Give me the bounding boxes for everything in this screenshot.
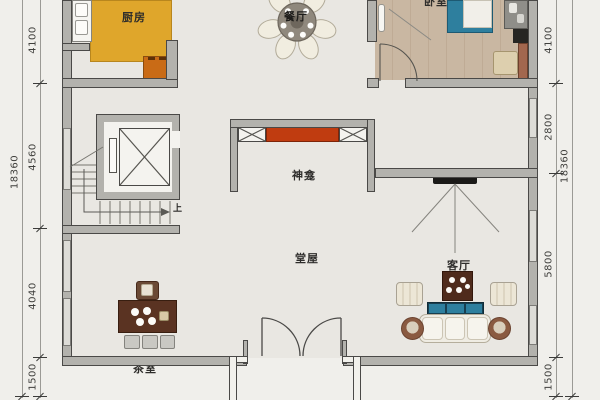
dim-left-seg-4100: 4100 — [28, 26, 39, 53]
dim-line-left-segments — [40, 0, 41, 398]
dining-room-label: 餐厅 — [284, 8, 308, 24]
bedroom-left-wall — [367, 0, 377, 42]
dim-right-overall-18360: 18360 — [560, 149, 571, 183]
tea-stool-2 — [142, 335, 158, 349]
kitchen-sink-basin-1 — [75, 3, 88, 17]
stove-knob-2 — [159, 57, 166, 60]
tea-stool-1 — [124, 335, 140, 349]
dim-right-seg-5800: 5800 — [544, 250, 555, 277]
dim-right-seg-1500: 1500 — [544, 363, 555, 390]
tea-cup-4 — [148, 317, 156, 325]
dim-tick — [565, 389, 579, 400]
armchair-right — [490, 282, 517, 306]
coffee-table-flower-4 — [456, 287, 462, 293]
shrine-wall-right — [367, 119, 375, 192]
elevator-door-gap — [171, 131, 180, 148]
porch-wall-right-side — [353, 356, 361, 400]
coffee-table-flower-3 — [446, 287, 452, 293]
bedroom-bottom-wall-corner — [367, 78, 379, 88]
tea-tray — [159, 311, 169, 321]
dim-right-seg-4100: 4100 — [544, 26, 555, 53]
stairs-up-label: 上 — [173, 201, 183, 214]
floor-plan: 厨房 神龛 客厅 堂屋 茶室 — [0, 0, 600, 400]
window-right-2 — [529, 210, 537, 262]
tea-cup-3 — [136, 318, 144, 326]
window-left-1 — [63, 128, 71, 190]
window-right-3 — [529, 305, 537, 345]
dim-line-right-segments — [556, 0, 557, 398]
dim-tick — [33, 221, 47, 235]
kitchen-left-wall-stub — [62, 43, 90, 51]
stairhall-bottom-wall — [62, 225, 180, 234]
corner-cabinet — [513, 29, 528, 43]
shrine-wall-top — [230, 119, 375, 128]
tea-stool-3 — [160, 335, 175, 349]
porch-wall-left-side — [229, 356, 237, 400]
dim-right-seg-2800: 2800 — [544, 113, 555, 140]
kitchen-right-wall — [166, 40, 178, 80]
outer-wall-bottom-left — [62, 356, 247, 366]
bedroom-label: 卧室 — [424, 0, 448, 9]
dim-tick — [33, 350, 47, 364]
kitchen-sink-basin-2 — [75, 20, 88, 35]
wardrobe-clothes-1 — [509, 3, 517, 13]
living-room-top-wall — [375, 168, 538, 178]
shrine-wall-left — [230, 119, 238, 192]
dim-left-overall-18360: 18360 — [10, 155, 21, 189]
side-ottoman-right — [488, 317, 511, 340]
dim-tick — [549, 76, 563, 90]
dim-left-seg-4560: 4560 — [28, 143, 39, 170]
dim-tick — [549, 350, 563, 364]
bedroom-door-leaf-panel — [378, 4, 385, 32]
wardrobe-clothes-2 — [517, 14, 524, 23]
elevator-counterweight — [109, 138, 117, 173]
coffee-table-flower-2 — [460, 277, 466, 283]
dim-left-seg-4040: 4040 — [28, 282, 39, 309]
dim-line-left-overall — [22, 0, 23, 398]
dim-line-right-overall — [572, 0, 573, 398]
sofa-seat-2 — [445, 317, 466, 340]
window-left-3 — [63, 298, 71, 346]
shrine-altar — [266, 127, 339, 142]
tea-chair-cushion — [141, 284, 153, 296]
dim-tick — [33, 76, 47, 90]
shrine-cabinet-right — [339, 127, 367, 142]
coffee-table-flower-5 — [465, 284, 470, 289]
kitchen-label: 厨房 — [122, 9, 146, 25]
bedroom-stool — [493, 51, 518, 75]
sofa-cushion-1 — [429, 304, 445, 313]
kitchen-bottom-wall — [62, 78, 178, 88]
shrine-label: 神龛 — [292, 167, 316, 183]
sofa-seat-1 — [422, 317, 443, 340]
window-left-2 — [63, 240, 71, 292]
sofa-seat-3 — [467, 317, 488, 340]
window-right-1 — [529, 98, 537, 138]
shrine-cabinet-left — [238, 127, 266, 142]
sofa-cushion-3 — [466, 304, 482, 313]
coffee-table-flower-1 — [449, 277, 455, 283]
main-hall-label: 堂屋 — [295, 250, 319, 266]
sofa-seat — [419, 314, 491, 343]
stove-knob-1 — [148, 57, 155, 60]
armchair-left — [396, 282, 423, 306]
bed-mattress — [463, 0, 492, 28]
side-ottoman-left — [401, 317, 424, 340]
bedroom-bottom-wall — [405, 78, 538, 88]
outer-wall-bottom-right — [343, 356, 538, 366]
tea-cup-1 — [131, 308, 139, 316]
dim-left-seg-1500: 1500 — [28, 363, 39, 390]
elevator-car — [119, 128, 170, 186]
tea-cup-2 — [143, 307, 151, 315]
sofa-cushion-2 — [447, 304, 463, 313]
